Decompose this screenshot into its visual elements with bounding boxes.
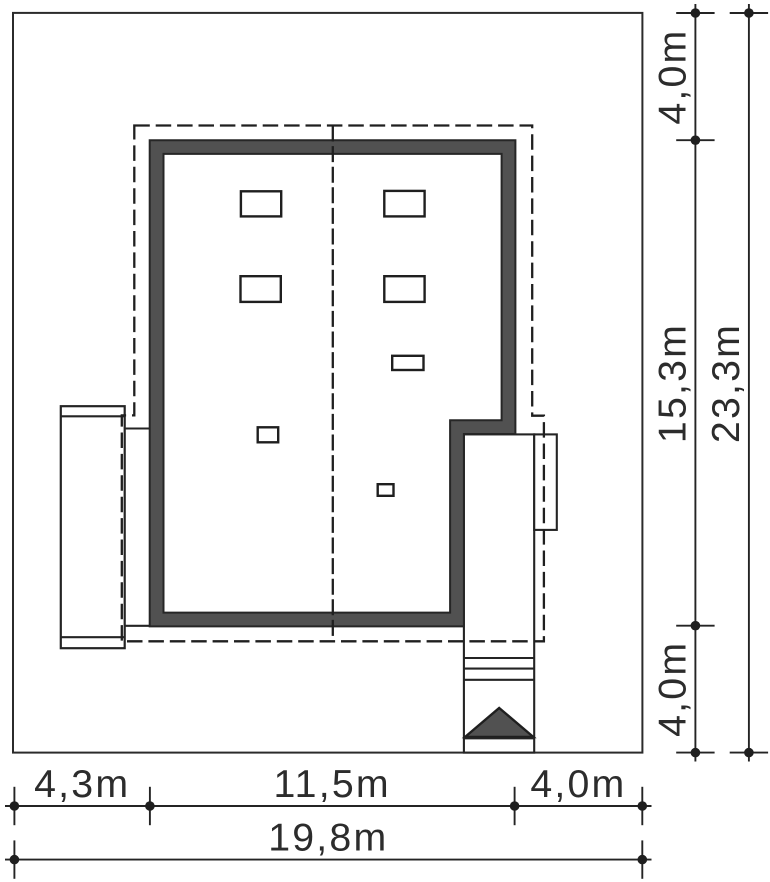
- svg-text:4,3m: 4,3m: [34, 762, 130, 806]
- svg-text:19,8m: 19,8m: [268, 816, 388, 860]
- svg-text:11,5m: 11,5m: [274, 762, 391, 806]
- svg-text:4,0m: 4,0m: [651, 29, 695, 125]
- svg-text:4,0m: 4,0m: [651, 641, 695, 737]
- svg-text:4,0m: 4,0m: [530, 762, 626, 806]
- svg-text:23,3m: 23,3m: [704, 323, 748, 443]
- svg-text:15,3m: 15,3m: [651, 323, 695, 443]
